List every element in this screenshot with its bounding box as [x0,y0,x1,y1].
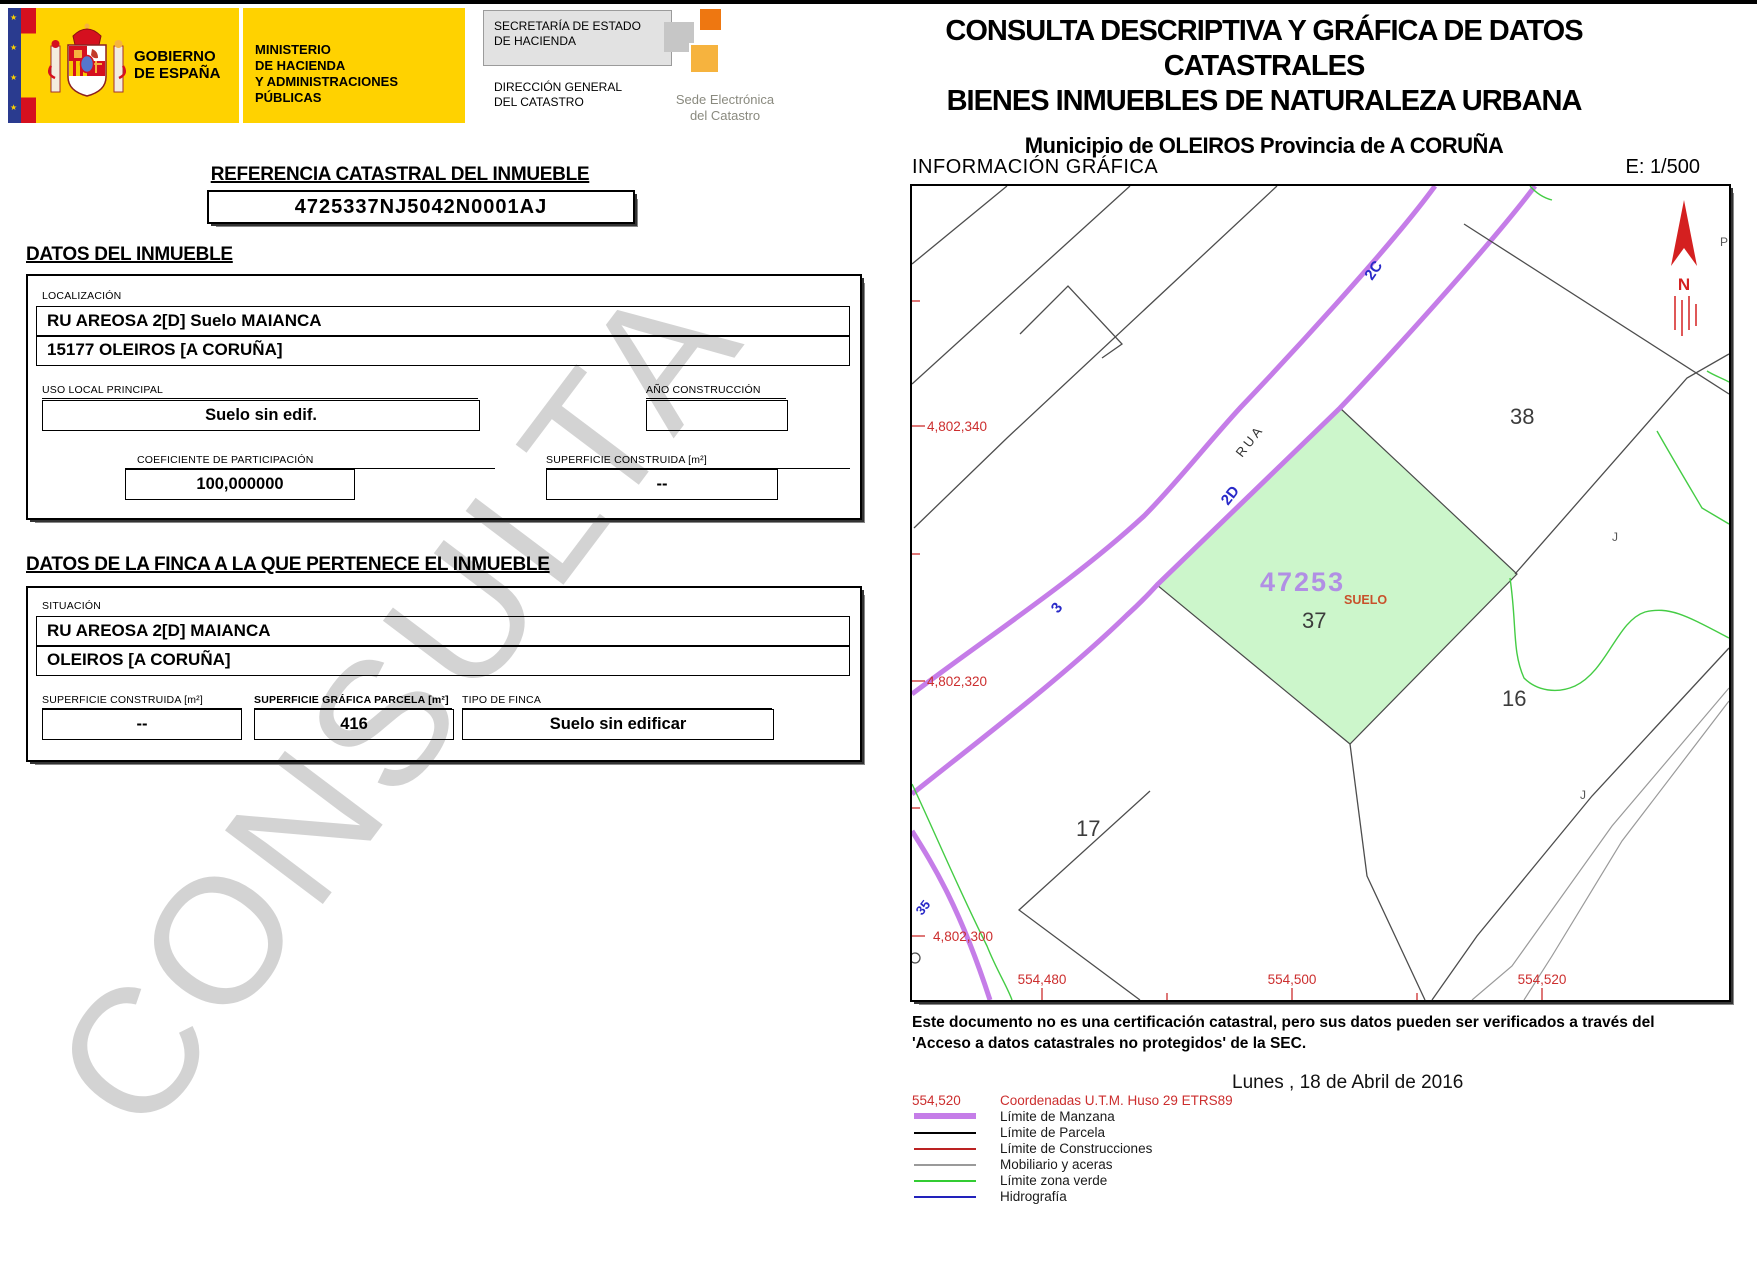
legend-coord-sample: 554,520 [912,1093,982,1108]
parcel-38: 38 [1510,404,1534,429]
referencia-value-box: 4725337NJ5042N0001AJ [207,190,635,224]
secretaria-box: SECRETARÍA DE ESTADO DE HACIENDA [483,10,672,66]
legend-coord-label: Coordenadas U.T.M. Huso 29 ETRS89 [1000,1093,1233,1108]
doc-title: CONSULTA DESCRIPTIVA Y GRÁFICA DE DATOS … [846,14,1682,159]
legend-swatch-parcela [914,1132,976,1134]
tipo-finca-label: TIPO DE FINCA [462,694,772,709]
legend-item-mobiliario: Mobiliario y aceras [912,1156,1472,1172]
sede-label: Sede Electrónica del Catastro [652,92,798,124]
utm-ticks [912,301,1542,1000]
utm-x-label: 554,480 [1018,972,1067,987]
star-icon: ★ [10,14,17,22]
legend-item-manzana: Límite de Manzana [912,1108,1472,1124]
legend-item-construcciones: Límite de Construcciones [912,1140,1472,1156]
date-label: Lunes , 18 de Abril de 2016 [1232,1072,1463,1094]
utm-y-label: 4,802,320 [927,674,987,689]
disclaimer: Este documento no es una certificación c… [912,1012,1702,1054]
utm-x-label: 554,520 [1518,972,1567,987]
north-arrow-icon: N [1671,200,1697,336]
sede-square-amber-icon [689,43,720,74]
coat-of-arms-icon [48,20,126,112]
ano-label: AÑO CONSTRUCCIÓN [646,384,786,399]
street-number-2c: 2C [1361,258,1386,284]
parcel-use-suelo: SUELO [1344,593,1387,607]
letter-p: P [1720,235,1728,249]
utm-x-label: 554,500 [1268,972,1317,987]
legend-swatch-mobiliario [914,1164,976,1166]
legend-item-hidrografia: Hidrografía [912,1188,1472,1204]
letter-j-2: J [1580,788,1586,802]
legend-item-parcela: Límite de Parcela [912,1124,1472,1140]
legend-swatch-zona-verde [914,1180,976,1182]
inmueble-panel: LOCALIZACIÓN RU AREOSA 2[D] Suelo MAIANC… [26,274,862,520]
legend-swatch-construcciones [914,1148,976,1150]
localizacion-label: LOCALIZACIÓN [42,290,121,302]
situacion-line-1: RU AREOSA 2[D] MAIANCA [36,616,850,647]
coef-value-box: 100,000000 [125,469,355,500]
situacion-label: SITUACIÓN [42,600,101,612]
letter-j-1: J [1612,530,1618,544]
street-label-rua: RUA [1233,422,1267,460]
uso-value-box: Suelo sin edif. [42,400,480,431]
ano-value-box [646,400,788,431]
sidewalk-lines [1472,688,1729,1000]
map-svg: 4,802,340 4,802,320 4,802,300 554,480 55… [912,186,1729,1000]
section-finca-heading: DATOS DE LA FINCA A LA QUE PERTENECE EL … [26,554,550,576]
legend-swatch-manzana [914,1113,976,1119]
finca-sup-construida-label: SUPERFICIE CONSTRUIDA [m²] [42,694,242,709]
section-inmueble-heading: DATOS DEL INMUEBLE [26,244,233,266]
document-page: CONSULTA ★ ★ ★ ★ [0,0,1757,1274]
ministerio-block: MINISTERIO DE HACIENDA Y ADMINISTRACIONE… [243,8,465,123]
localizacion-line-2: 15177 OLEIROS [A CORUÑA] [36,335,850,366]
star-icon: ★ [10,74,17,82]
uso-label: USO LOCAL PRINCIPAL [42,384,478,399]
street-number-35: 35 [913,897,934,918]
parcel-16: 16 [1502,686,1526,711]
parcel-17: 17 [1076,816,1100,841]
legend-swatch-hidrografia [914,1196,976,1198]
ministerio-label: MINISTERIO DE HACIENDA Y ADMINISTRACIONE… [255,42,465,106]
legend-coord-row: 554,520 Coordenadas U.T.M. Huso 29 ETRS8… [912,1092,1472,1108]
superficie-value-box: -- [546,469,778,500]
spain-flag-strip [21,8,36,123]
parcel-37: 37 [1302,608,1326,633]
situacion-line-2: OLEIROS [A CORUÑA] [36,645,850,676]
sup-grafica-label: SUPERFICIE GRÁFICA PARCELA [m²] [254,694,452,709]
sede-logo: Sede Electrónica del Catastro [652,6,798,128]
title-line-1: CONSULTA DESCRIPTIVA Y GRÁFICA DE DATOS … [846,14,1682,84]
north-n-label: N [1678,275,1690,294]
disclaimer-line-1: Este documento no es una certificación c… [912,1012,1702,1033]
referencia-heading: REFERENCIA CATASTRAL DEL INMUEBLE [150,164,650,186]
utm-y-label: 4,802,340 [927,419,987,434]
finca-sup-construida-box: -- [42,709,242,740]
page-top-border [0,0,1757,4]
finca-panel: SITUACIÓN RU AREOSA 2[D] MAIANCA OLEIROS… [26,586,862,762]
north-hatch [1675,296,1696,336]
disclaimer-line-2: 'Acceso a datos catastrales no protegido… [912,1033,1702,1054]
localizacion-line-1: RU AREOSA 2[D] Suelo MAIANCA [36,306,850,337]
gobierno-block: GOBIERNO DE ESPAÑA [36,8,239,123]
utm-y-label: 4,802,300 [933,929,993,944]
sup-grafica-box: 416 [254,709,454,740]
gobierno-label: GOBIERNO DE ESPAÑA [134,48,220,82]
title-line-2: BIENES INMUEBLES DE NATURALEZA URBANA [846,84,1682,119]
star-icon: ★ [10,44,17,52]
spain-eu-flag: ★ ★ ★ ★ [8,8,36,123]
cadastral-map: 4,802,340 4,802,320 4,802,300 554,480 55… [910,184,1731,1002]
legend-item-zona-verde: Límite zona verde [912,1172,1472,1188]
parcel-number-47253: 47253 [1260,567,1345,597]
street-number-3: 3 [1048,599,1067,616]
secretaria-label: SECRETARÍA DE ESTADO DE HACIENDA [494,19,641,49]
superficie-label: SUPERFICIE CONSTRUIDA [m²] [546,454,850,469]
direccion-label: DIRECCIÓN GENERAL DEL CATASTRO [494,80,622,110]
map-legend: 554,520 Coordenadas U.T.M. Huso 29 ETRS8… [912,1092,1472,1204]
informacion-grafica-heading: INFORMACIÓN GRÁFICA [912,156,1158,179]
coef-label: COEFICIENTE DE PARTICIPACIÓN [125,454,495,469]
tipo-finca-box: Suelo sin edificar [462,709,774,740]
sede-square-orange-icon [700,9,721,30]
eu-flag-strip: ★ ★ ★ ★ [8,8,21,123]
star-icon: ★ [10,104,17,112]
escala-label: E: 1/500 [1500,156,1700,179]
